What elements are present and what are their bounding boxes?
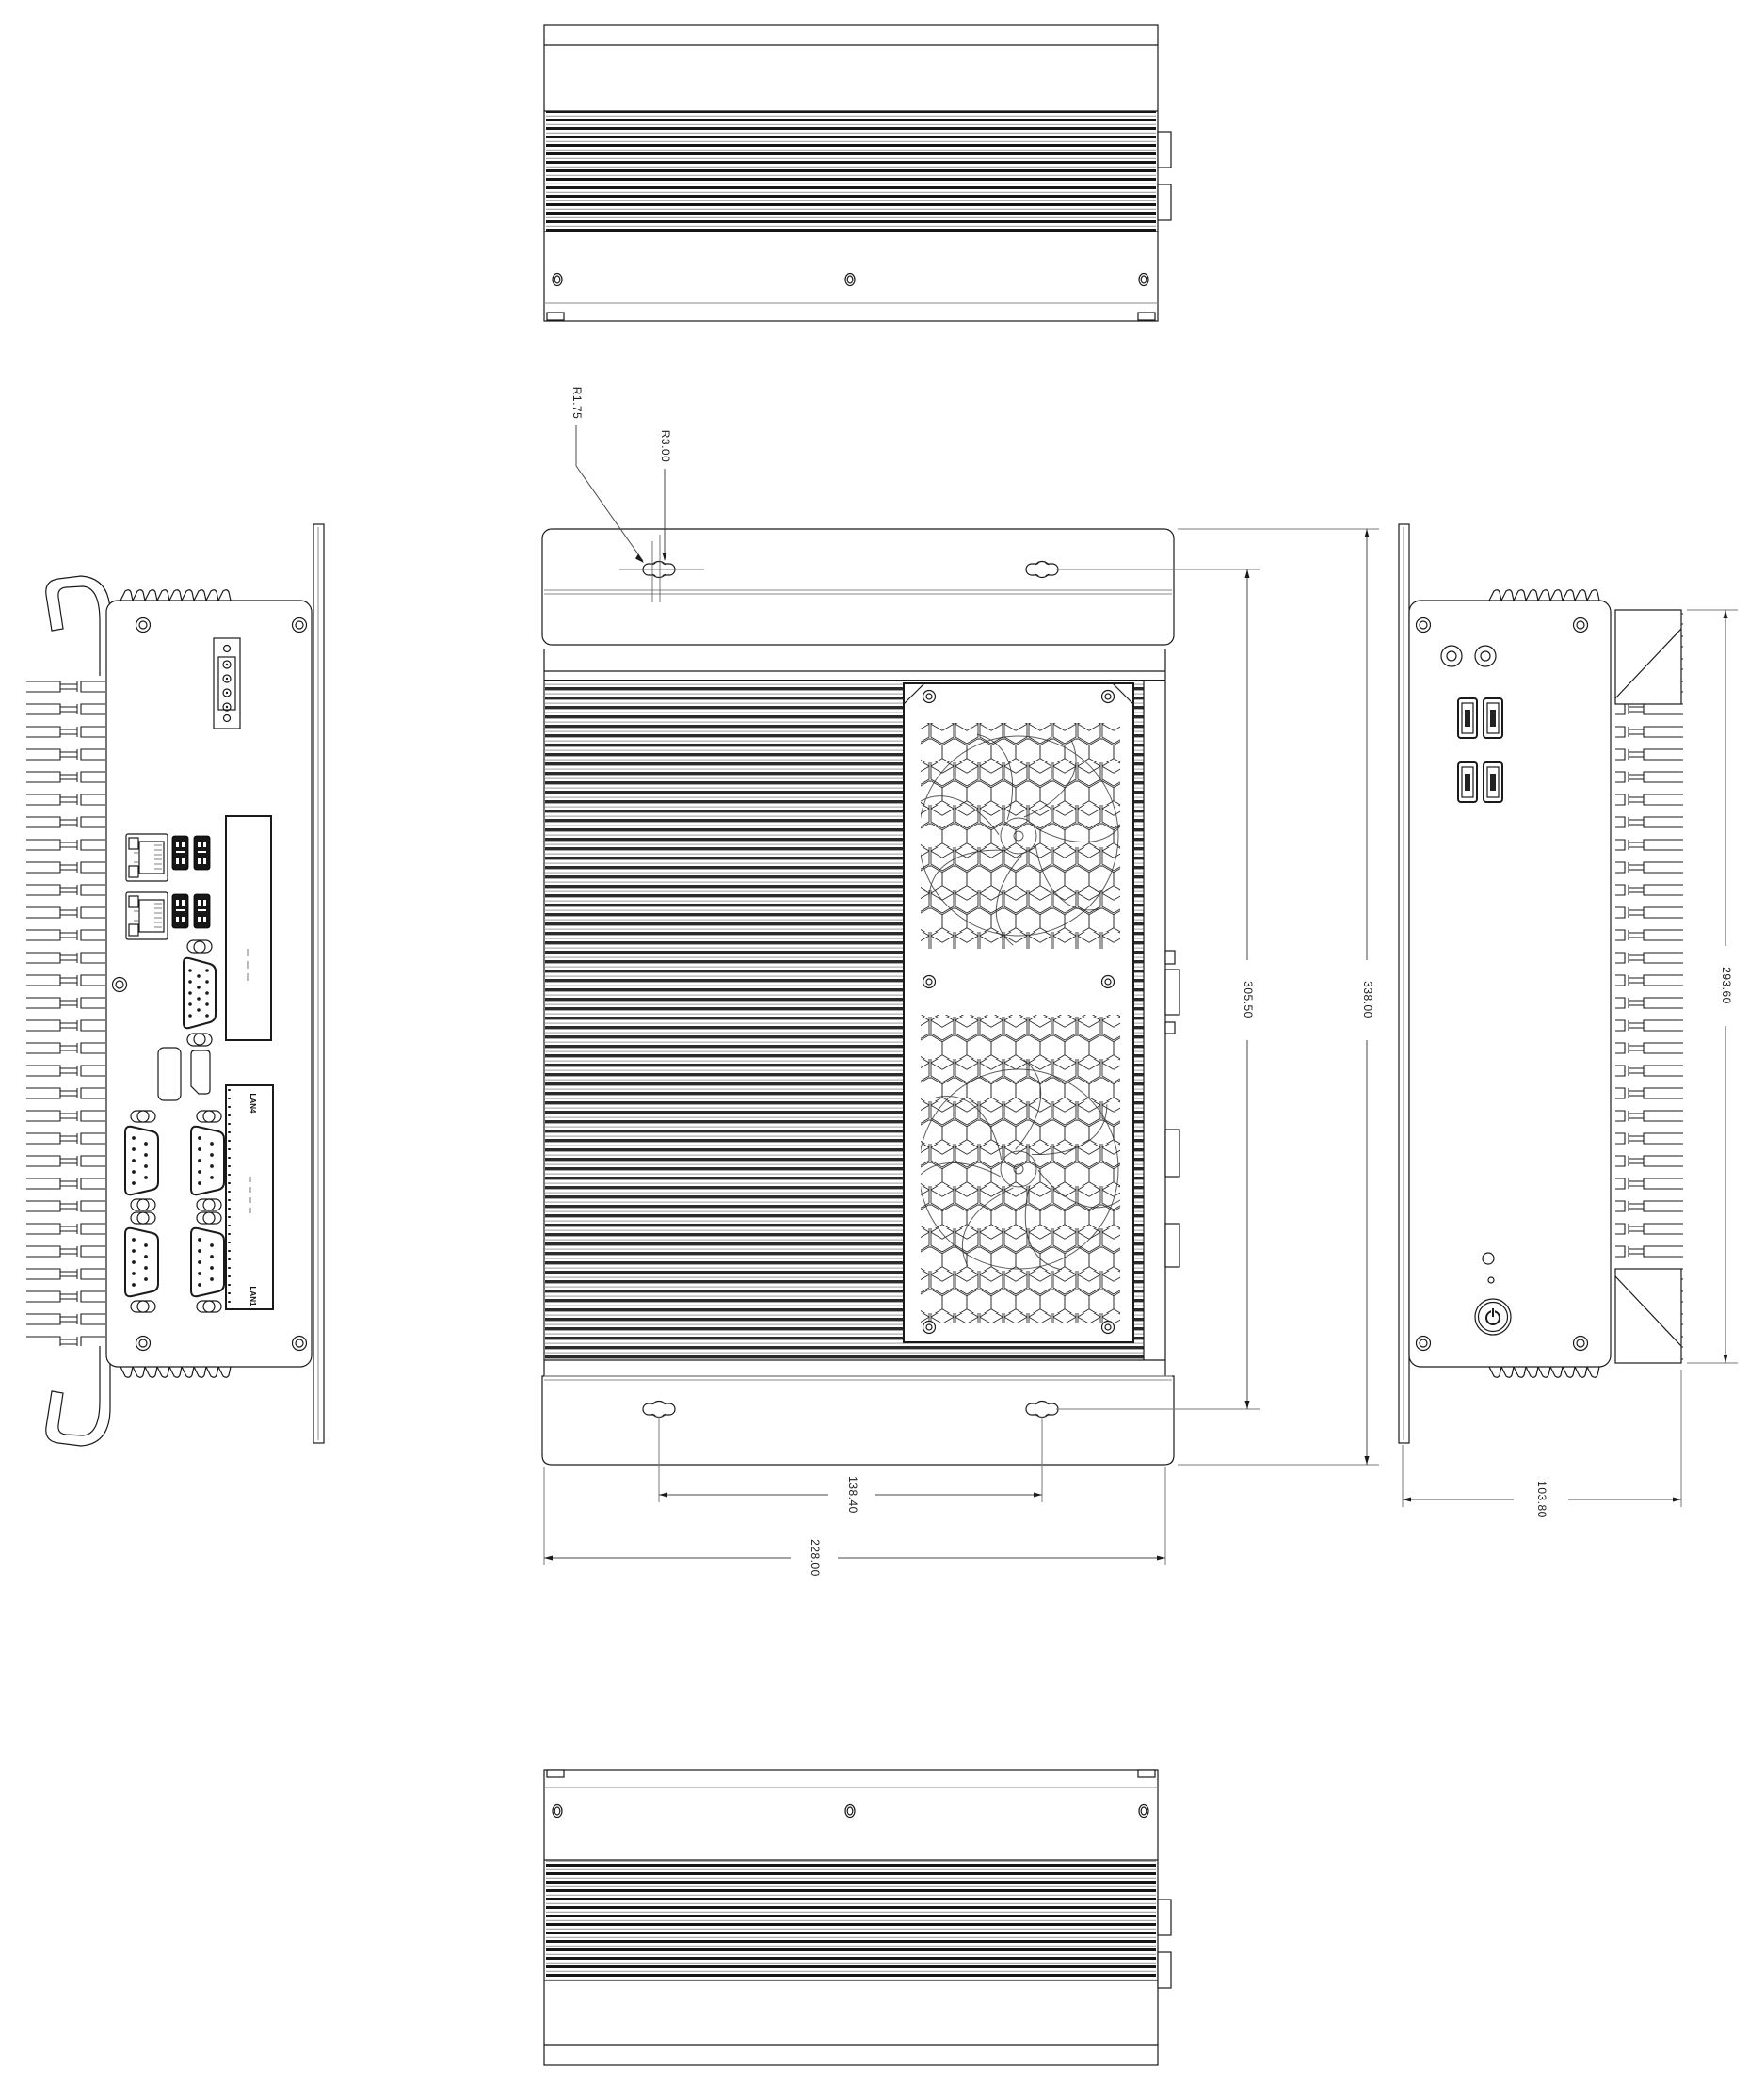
expansion-slot-lan: LAN4 LAN1 xyxy=(226,1085,273,1309)
vent-screw xyxy=(923,691,936,703)
screw-hole xyxy=(1139,274,1148,286)
vent-screw xyxy=(1102,1322,1115,1334)
corner-foot xyxy=(547,313,564,320)
vent-screw xyxy=(1102,691,1115,703)
panel-screw xyxy=(1417,1337,1431,1351)
view-bottom-strip xyxy=(544,1770,1171,2065)
svg-text:R3.00: R3.00 xyxy=(659,430,672,463)
usb-port xyxy=(172,836,188,870)
fin-serration xyxy=(120,590,231,601)
dim-overall-height: 338.00 xyxy=(1178,529,1379,1465)
display-port xyxy=(191,1050,210,1094)
fanless-pc-engineering-drawing: LAN4 LAN1 xyxy=(0,0,1749,2100)
display-port xyxy=(158,1048,181,1100)
svg-text:138.40: 138.40 xyxy=(846,1476,859,1514)
svg-text:228.00: 228.00 xyxy=(809,1539,822,1577)
vent-screw xyxy=(1102,976,1115,988)
side-connector-tab xyxy=(1158,184,1171,220)
side-connector-tab xyxy=(1158,1952,1171,1988)
view-front-panel xyxy=(1399,524,1683,1443)
fin-serration xyxy=(120,1367,231,1377)
honeycomb-vent xyxy=(921,723,1120,949)
usb-port xyxy=(1458,762,1477,802)
svg-text:338.00: 338.00 xyxy=(1361,981,1374,1018)
power-terminal-block xyxy=(214,638,240,729)
bottom-mounting-bracket xyxy=(542,1376,1174,1465)
fin-end-cap xyxy=(1615,610,1681,704)
svg-text:R1.75: R1.75 xyxy=(570,387,584,420)
corner-foot xyxy=(1138,1770,1155,1777)
vent-screw xyxy=(923,976,936,988)
side-connector-tab xyxy=(1165,970,1179,1015)
corner-foot xyxy=(1138,313,1155,320)
screw-hole xyxy=(845,274,855,286)
fin-serration xyxy=(1489,590,1599,601)
screw-hole xyxy=(553,274,562,286)
keyhole-mounting-slot xyxy=(1026,1402,1058,1418)
panel-screw xyxy=(293,618,307,633)
front-panel-face xyxy=(1409,601,1611,1367)
fan-vent-plate xyxy=(904,683,1133,1342)
screw-hole xyxy=(553,1805,562,1818)
lan-port xyxy=(126,892,168,939)
fin-serration xyxy=(1489,1367,1599,1377)
keyhole-mounting-slot xyxy=(1026,562,1058,578)
usb-port xyxy=(194,894,210,928)
dim-chassis-height: 293.60 xyxy=(1687,610,1738,1363)
usb-port xyxy=(194,836,210,870)
corner-foot xyxy=(547,1770,564,1777)
panel-screw xyxy=(136,618,151,633)
panel-screw xyxy=(136,1337,151,1351)
view-rear-panel: LAN4 LAN1 xyxy=(26,524,324,1446)
panel-screw xyxy=(113,978,127,992)
honeycomb-vent xyxy=(921,1015,1120,1323)
mount-ear xyxy=(46,1346,110,1446)
side-connector-tab xyxy=(1165,1022,1175,1034)
usb-port xyxy=(1484,698,1502,738)
top-mounting-bracket xyxy=(542,529,1174,645)
fin-end-cap xyxy=(1615,1269,1681,1363)
expansion-slot xyxy=(226,816,271,1040)
side-connector-tab xyxy=(1158,1900,1171,1935)
svg-text:305.50: 305.50 xyxy=(1242,981,1255,1018)
panel-screw xyxy=(1574,618,1588,633)
side-connector-tab xyxy=(1158,132,1171,168)
svg-text:293.60: 293.60 xyxy=(1720,967,1733,1004)
screw-hole xyxy=(1139,1805,1148,1818)
heatsink-fins-bottom xyxy=(546,1860,1156,1980)
usb-port xyxy=(172,894,188,928)
panel-screw xyxy=(1417,618,1431,633)
heatsink-fins-side xyxy=(1615,610,1683,1363)
usb-port xyxy=(1484,762,1502,802)
view-plan xyxy=(542,529,1179,1465)
keyhole-mounting-slot xyxy=(643,1402,675,1418)
slot-label-top: LAN4 xyxy=(249,1094,257,1114)
panel-screw xyxy=(293,1337,307,1351)
vent-screw xyxy=(923,1322,936,1334)
view-top-strip xyxy=(544,25,1171,321)
dim-chassis-depth: 103.80 xyxy=(1403,1370,1681,1518)
screw-hole xyxy=(845,1805,855,1818)
lan-port xyxy=(126,834,168,881)
usb-port xyxy=(1458,698,1477,738)
svg-text:103.80: 103.80 xyxy=(1535,1481,1548,1518)
heatsink-fins-top xyxy=(546,111,1156,232)
panel-screw xyxy=(1574,1337,1588,1351)
mount-ear xyxy=(46,576,110,676)
technical-drawing-page: LAN4 LAN1 xyxy=(0,0,1749,2100)
slot-label-bottom: LAN1 xyxy=(249,1287,257,1306)
side-connector-tab xyxy=(1165,1130,1179,1177)
side-connector-tab xyxy=(1165,1224,1179,1267)
side-connector-tab xyxy=(1165,951,1175,964)
heatsink-fins-side xyxy=(26,676,105,1346)
